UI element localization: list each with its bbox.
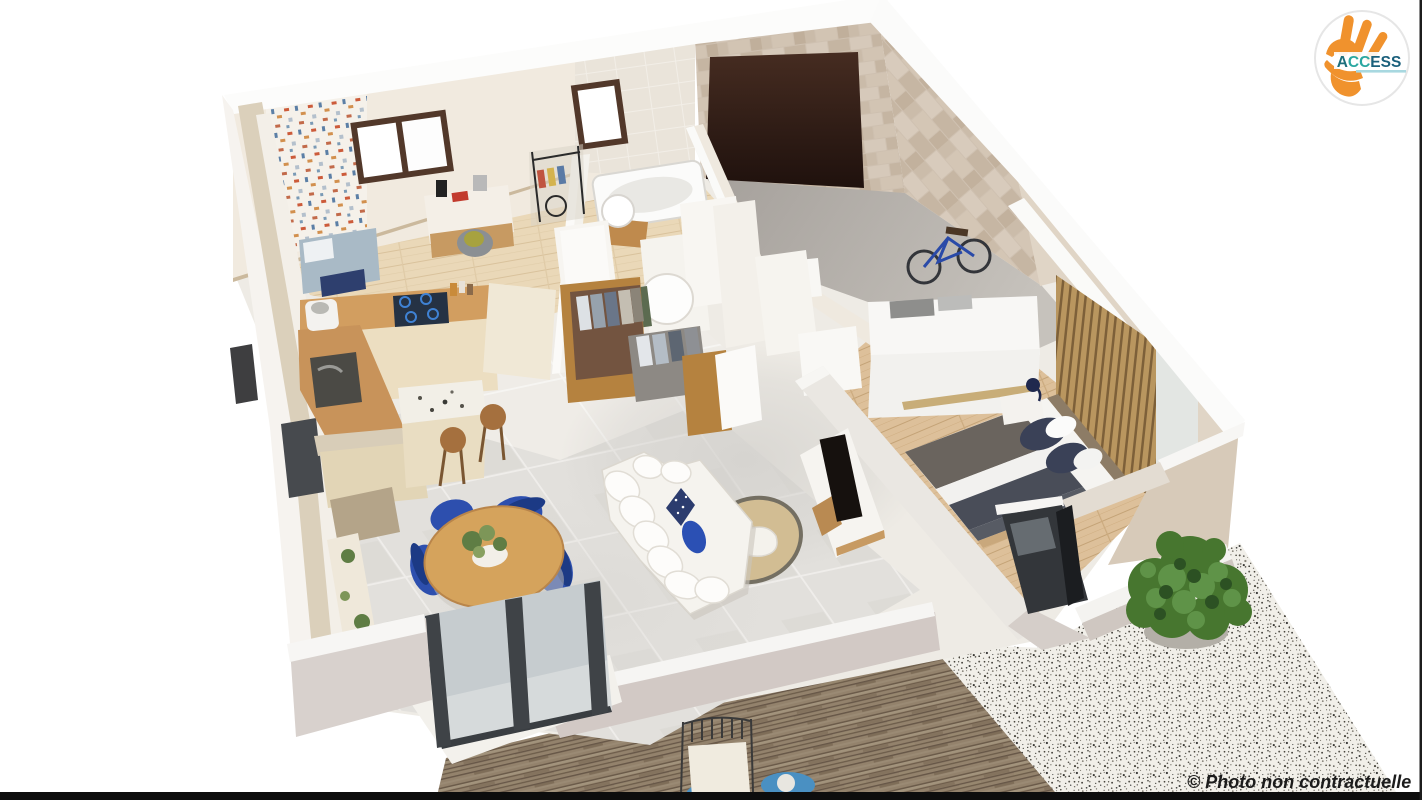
svg-text:ACCESS: ACCESS <box>1337 54 1402 71</box>
svg-text:© Photo non contractuelle: © Photo non contractuelle <box>1187 772 1411 792</box>
